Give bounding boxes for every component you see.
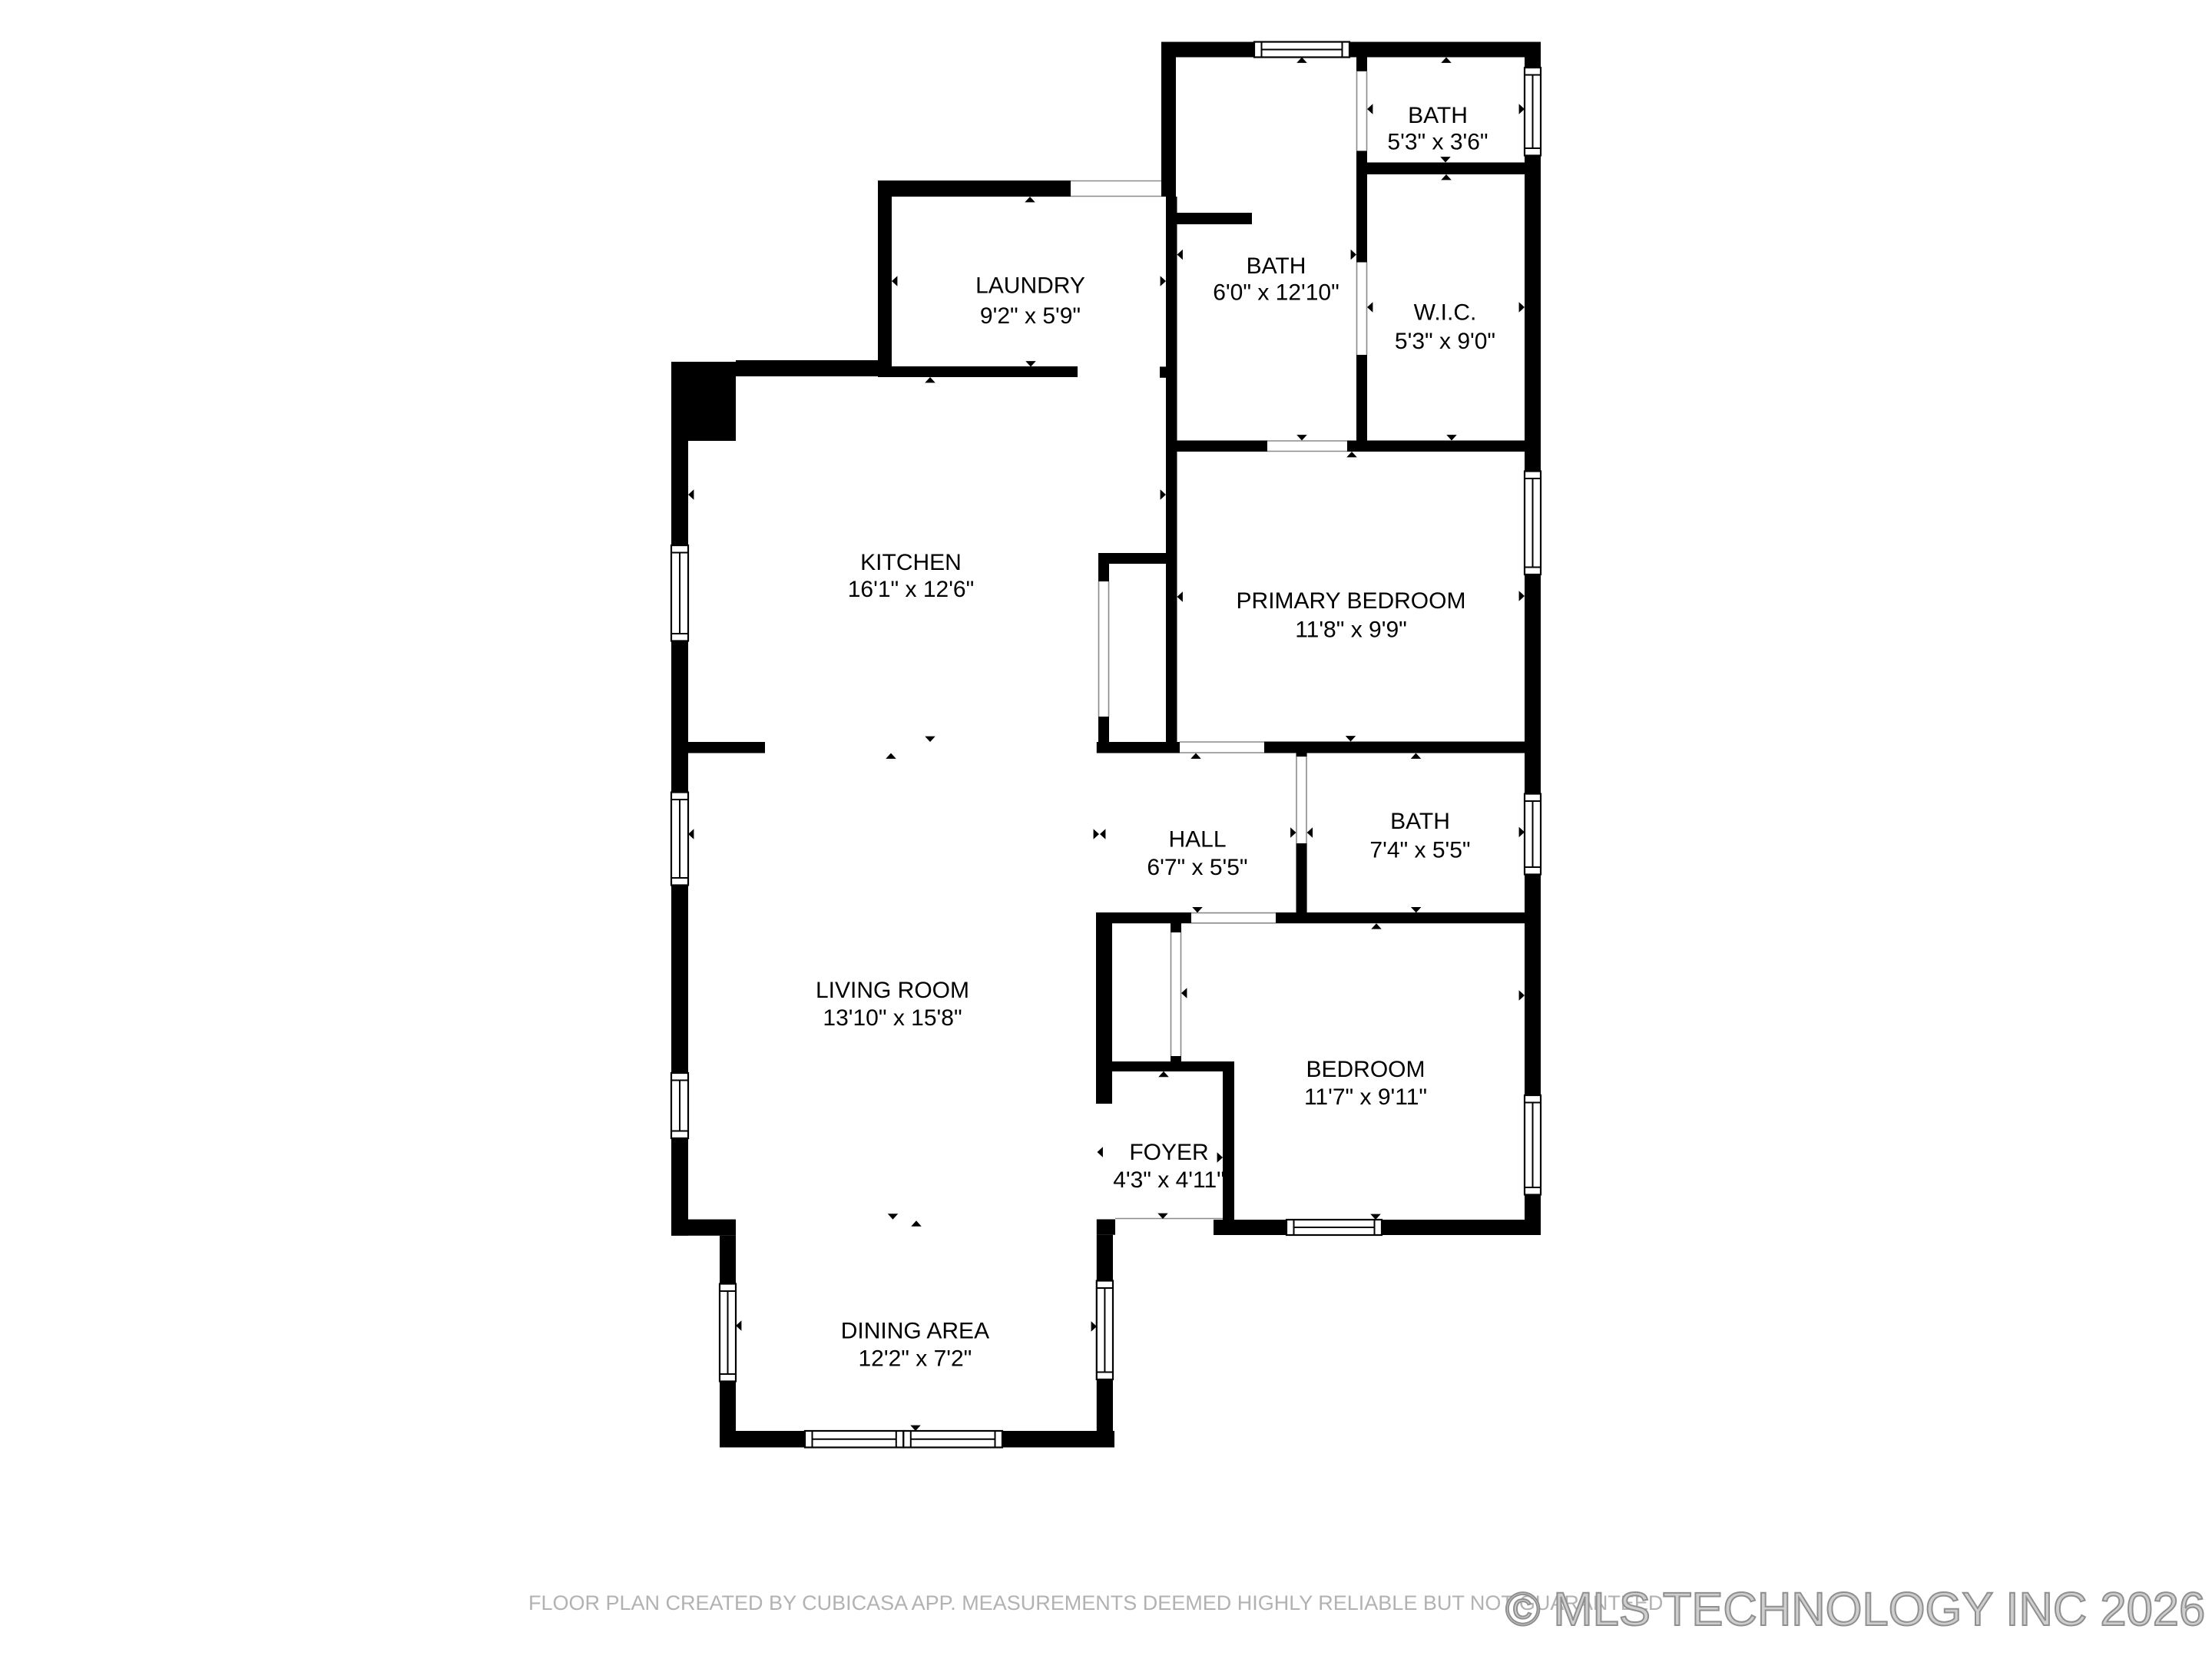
svg-text:6'7" x 5'5": 6'7" x 5'5"	[1147, 855, 1247, 880]
svg-text:FLOOR PLAN CREATED BY CUBICASA: FLOOR PLAN CREATED BY CUBICASA APP. MEAS…	[528, 1591, 1663, 1614]
svg-text:11'8" x 9'9": 11'8" x 9'9"	[1295, 618, 1407, 643]
svg-text:PRIMARY BEDROOM: PRIMARY BEDROOM	[1237, 588, 1466, 614]
svg-text:KITCHEN: KITCHEN	[860, 550, 962, 575]
svg-text:5'3" x 3'6": 5'3" x 3'6"	[1387, 129, 1488, 154]
svg-text:HALL: HALL	[1168, 827, 1226, 853]
svg-text:BATH: BATH	[1247, 253, 1306, 279]
svg-text:13'10" x 15'8": 13'10" x 15'8"	[823, 1005, 962, 1031]
svg-text:FOYER: FOYER	[1129, 1140, 1208, 1165]
svg-text:9'2" x 5'9": 9'2" x 5'9"	[980, 303, 1081, 329]
svg-text:4'3" x 4'11": 4'3" x 4'11"	[1113, 1167, 1225, 1193]
svg-text:LIVING ROOM: LIVING ROOM	[816, 978, 969, 1003]
svg-text:BEDROOM: BEDROOM	[1306, 1057, 1425, 1082]
svg-text:BATH: BATH	[1408, 103, 1468, 128]
svg-text:DINING AREA: DINING AREA	[841, 1318, 989, 1343]
svg-text:W.I.C.: W.I.C.	[1414, 300, 1477, 326]
svg-text:LAUNDRY: LAUNDRY	[975, 273, 1085, 299]
svg-text:BATH: BATH	[1390, 809, 1450, 834]
svg-text:11'7" x 9'11": 11'7" x 9'11"	[1304, 1084, 1427, 1110]
svg-text:© MLS TECHNOLOGY INC 2026: © MLS TECHNOLOGY INC 2026	[1505, 1583, 2205, 1636]
svg-text:7'4" x 5'5": 7'4" x 5'5"	[1369, 838, 1470, 863]
svg-text:12'2" x 7'2": 12'2" x 7'2"	[858, 1346, 972, 1372]
svg-text:5'3" x 9'0": 5'3" x 9'0"	[1395, 329, 1495, 354]
svg-text:6'0" x 12'10": 6'0" x 12'10"	[1213, 280, 1339, 305]
svg-text:16'1" x 12'6": 16'1" x 12'6"	[848, 577, 975, 602]
